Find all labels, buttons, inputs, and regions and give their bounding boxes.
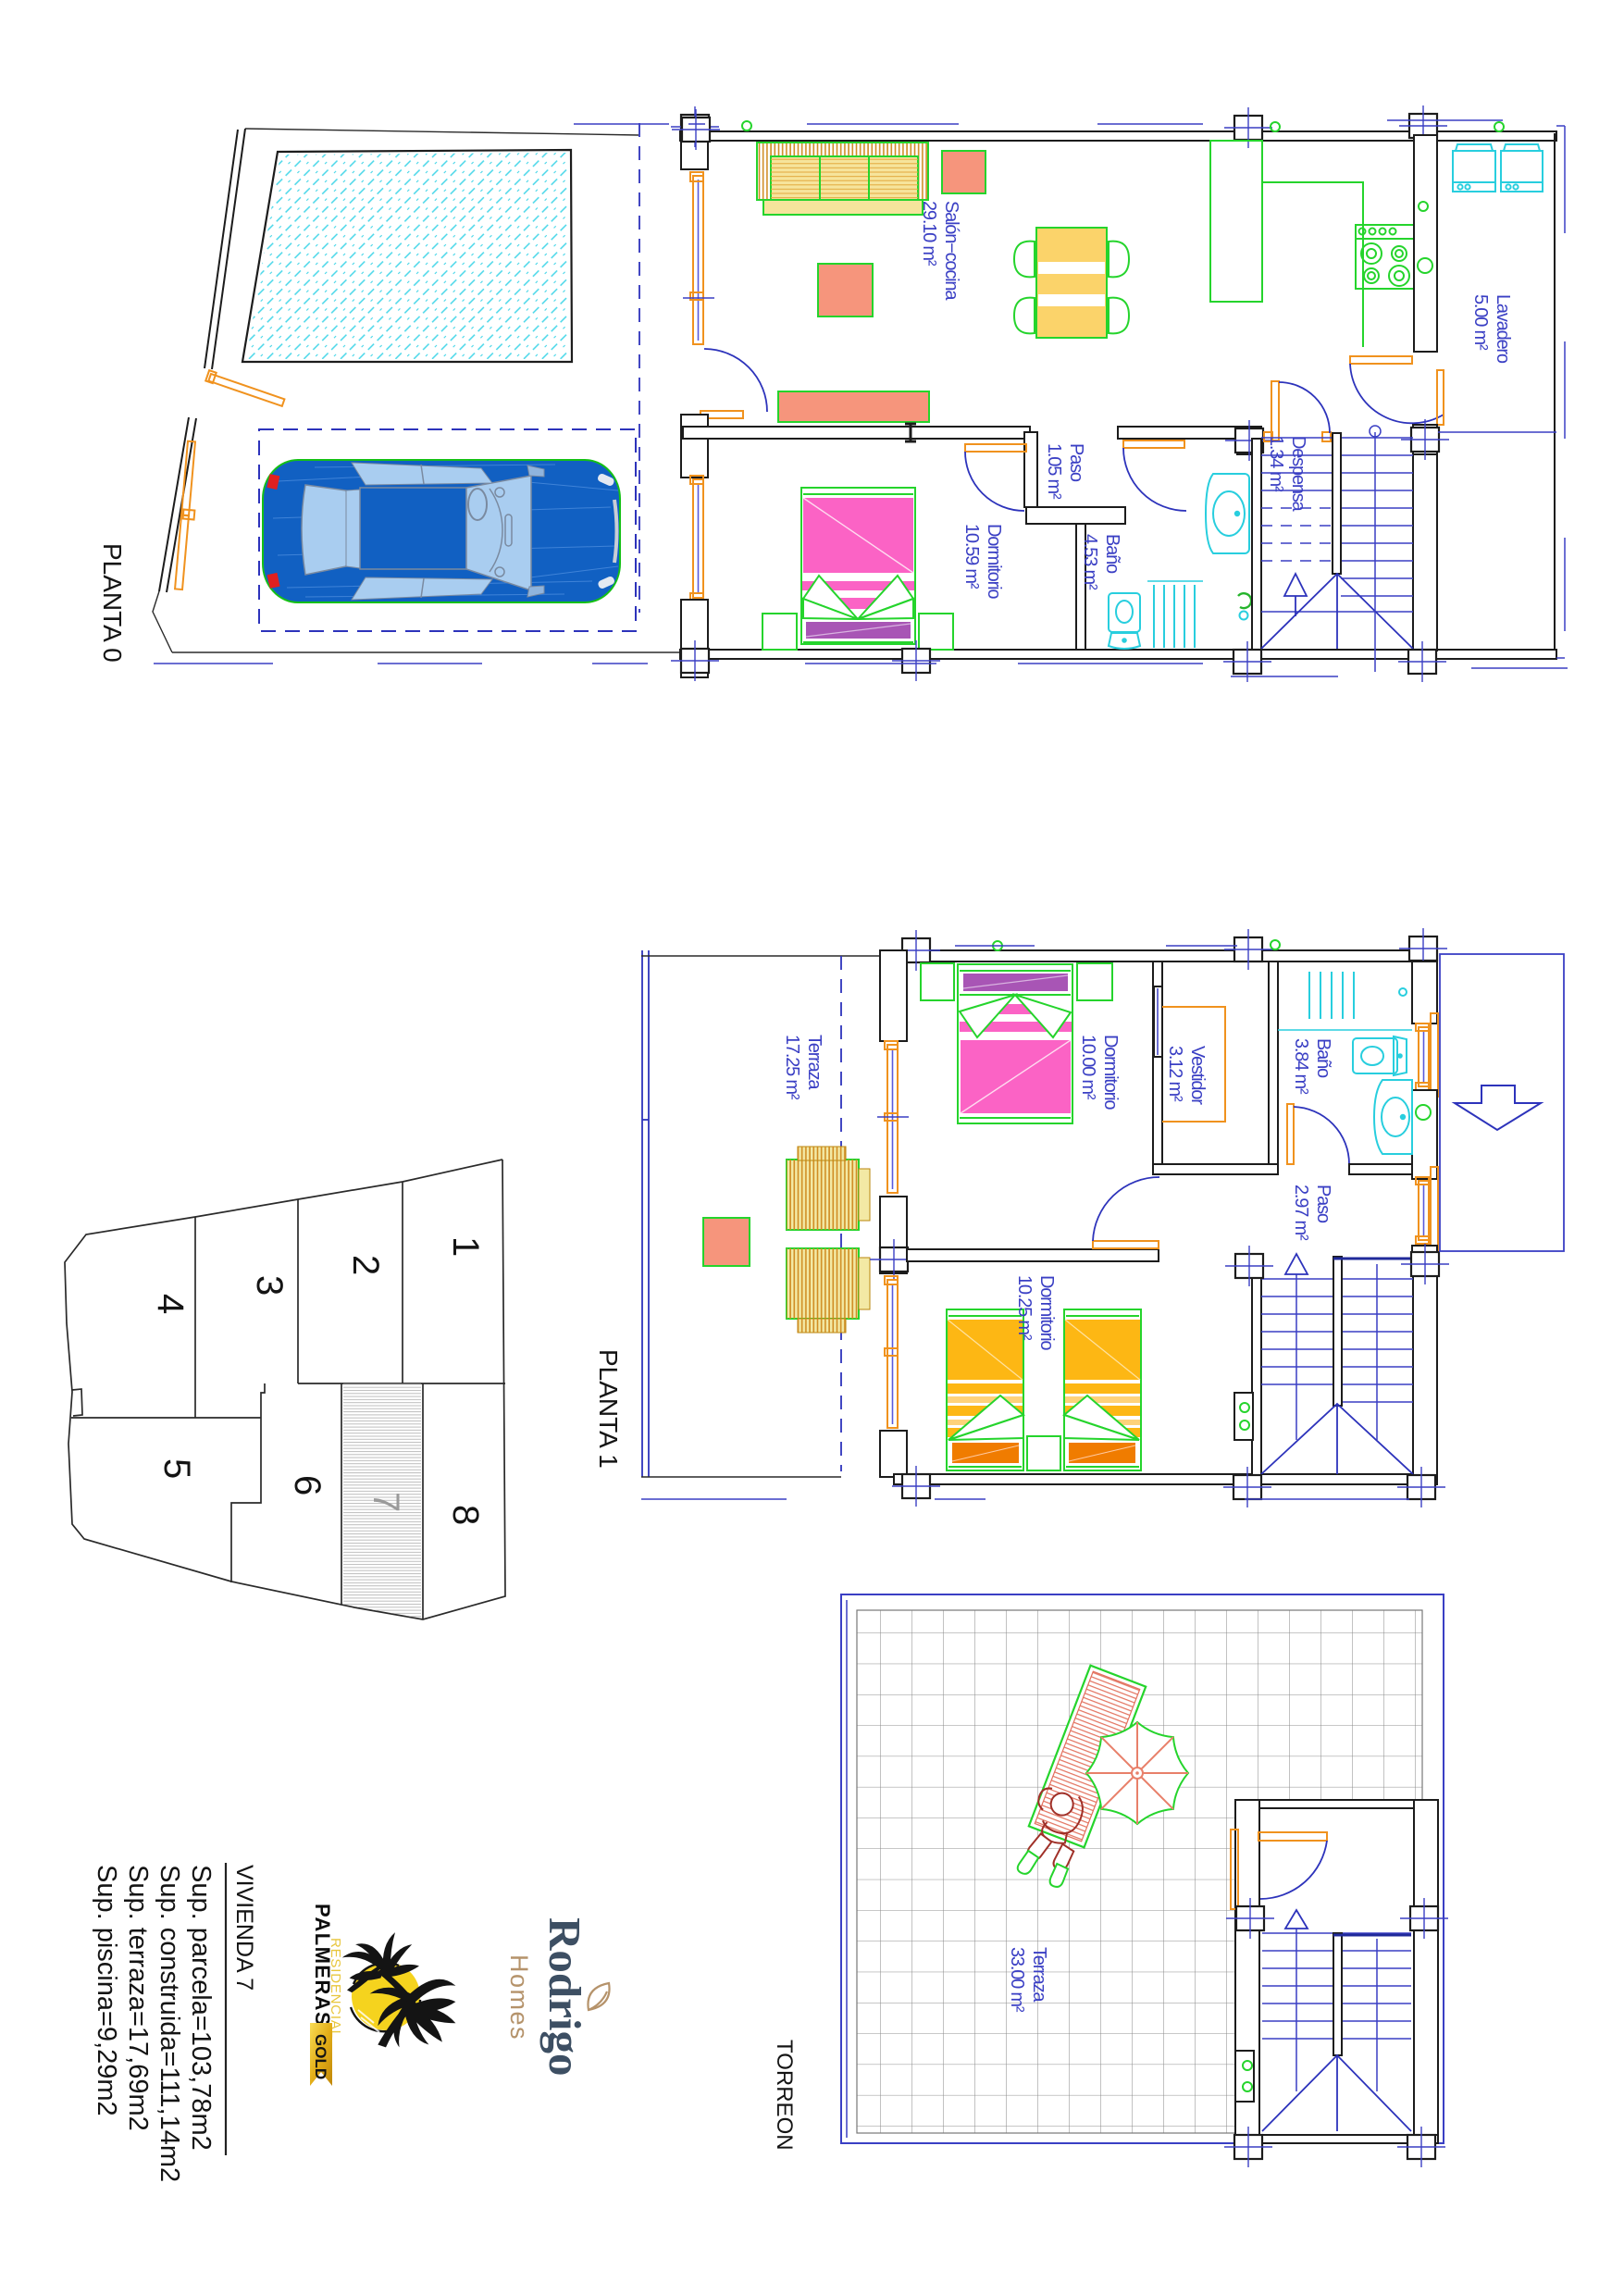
svg-text:VIVIENDA 7: VIVIENDA 7 — [231, 1865, 257, 1991]
svg-text:6: 6 — [287, 1475, 328, 1495]
svg-text:3: 3 — [249, 1275, 290, 1296]
svg-text:5: 5 — [156, 1458, 197, 1479]
svg-text:2: 2 — [345, 1255, 386, 1275]
svg-text:7: 7 — [366, 1492, 406, 1512]
svg-text:Sup. piscina=9,29m2: Sup. piscina=9,29m2 — [92, 1865, 121, 2116]
svg-text:PLANTA 0: PLANTA 0 — [98, 543, 127, 663]
svg-text:1: 1 — [445, 1236, 486, 1257]
svg-text:Sup. terraza=17,69m2: Sup. terraza=17,69m2 — [123, 1865, 153, 2131]
svg-text:Homes: Homes — [505, 1954, 533, 2041]
svg-text:Sup. construida=111,14m2: Sup. construida=111,14m2 — [155, 1865, 184, 2182]
svg-text:8: 8 — [445, 1505, 486, 1525]
svg-text:4: 4 — [150, 1294, 191, 1314]
svg-text:TORREON: TORREON — [772, 2040, 797, 2151]
svg-text:PLANTA 1: PLANTA 1 — [594, 1349, 623, 1469]
svg-text:Rodrigo: Rodrigo — [539, 1917, 590, 2077]
svg-text:GOLD: GOLD — [312, 2034, 329, 2079]
svg-text:Sup. parcela=103,78m2: Sup. parcela=103,78m2 — [186, 1865, 216, 2151]
